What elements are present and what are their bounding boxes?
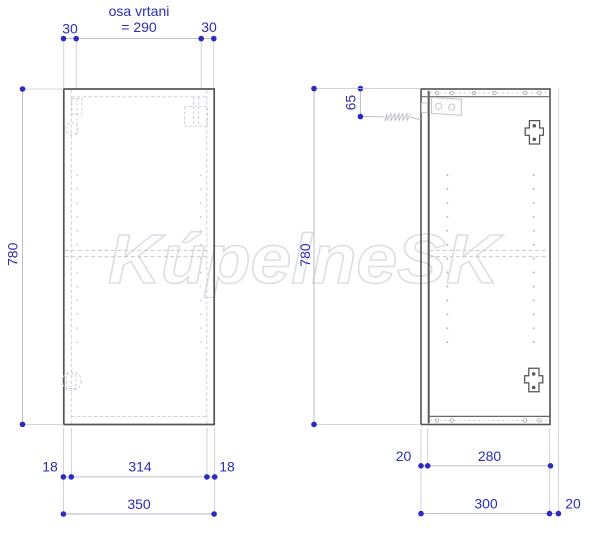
svg-text:280: 280: [478, 448, 502, 464]
svg-text:osa vrtani: osa vrtani: [109, 3, 170, 19]
svg-text:780: 780: [297, 243, 313, 267]
svg-text:350: 350: [127, 496, 151, 512]
svg-text:780: 780: [4, 242, 20, 266]
svg-text:65: 65: [343, 95, 359, 111]
svg-text:18: 18: [42, 458, 58, 474]
svg-text:30: 30: [201, 19, 217, 35]
svg-text:314: 314: [128, 458, 152, 474]
svg-text:20: 20: [565, 496, 581, 512]
svg-text:18: 18: [219, 458, 235, 474]
svg-text:30: 30: [62, 21, 78, 37]
svg-text:20: 20: [396, 448, 412, 464]
svg-text:= 290: = 290: [121, 19, 157, 35]
svg-text:300: 300: [474, 496, 498, 512]
